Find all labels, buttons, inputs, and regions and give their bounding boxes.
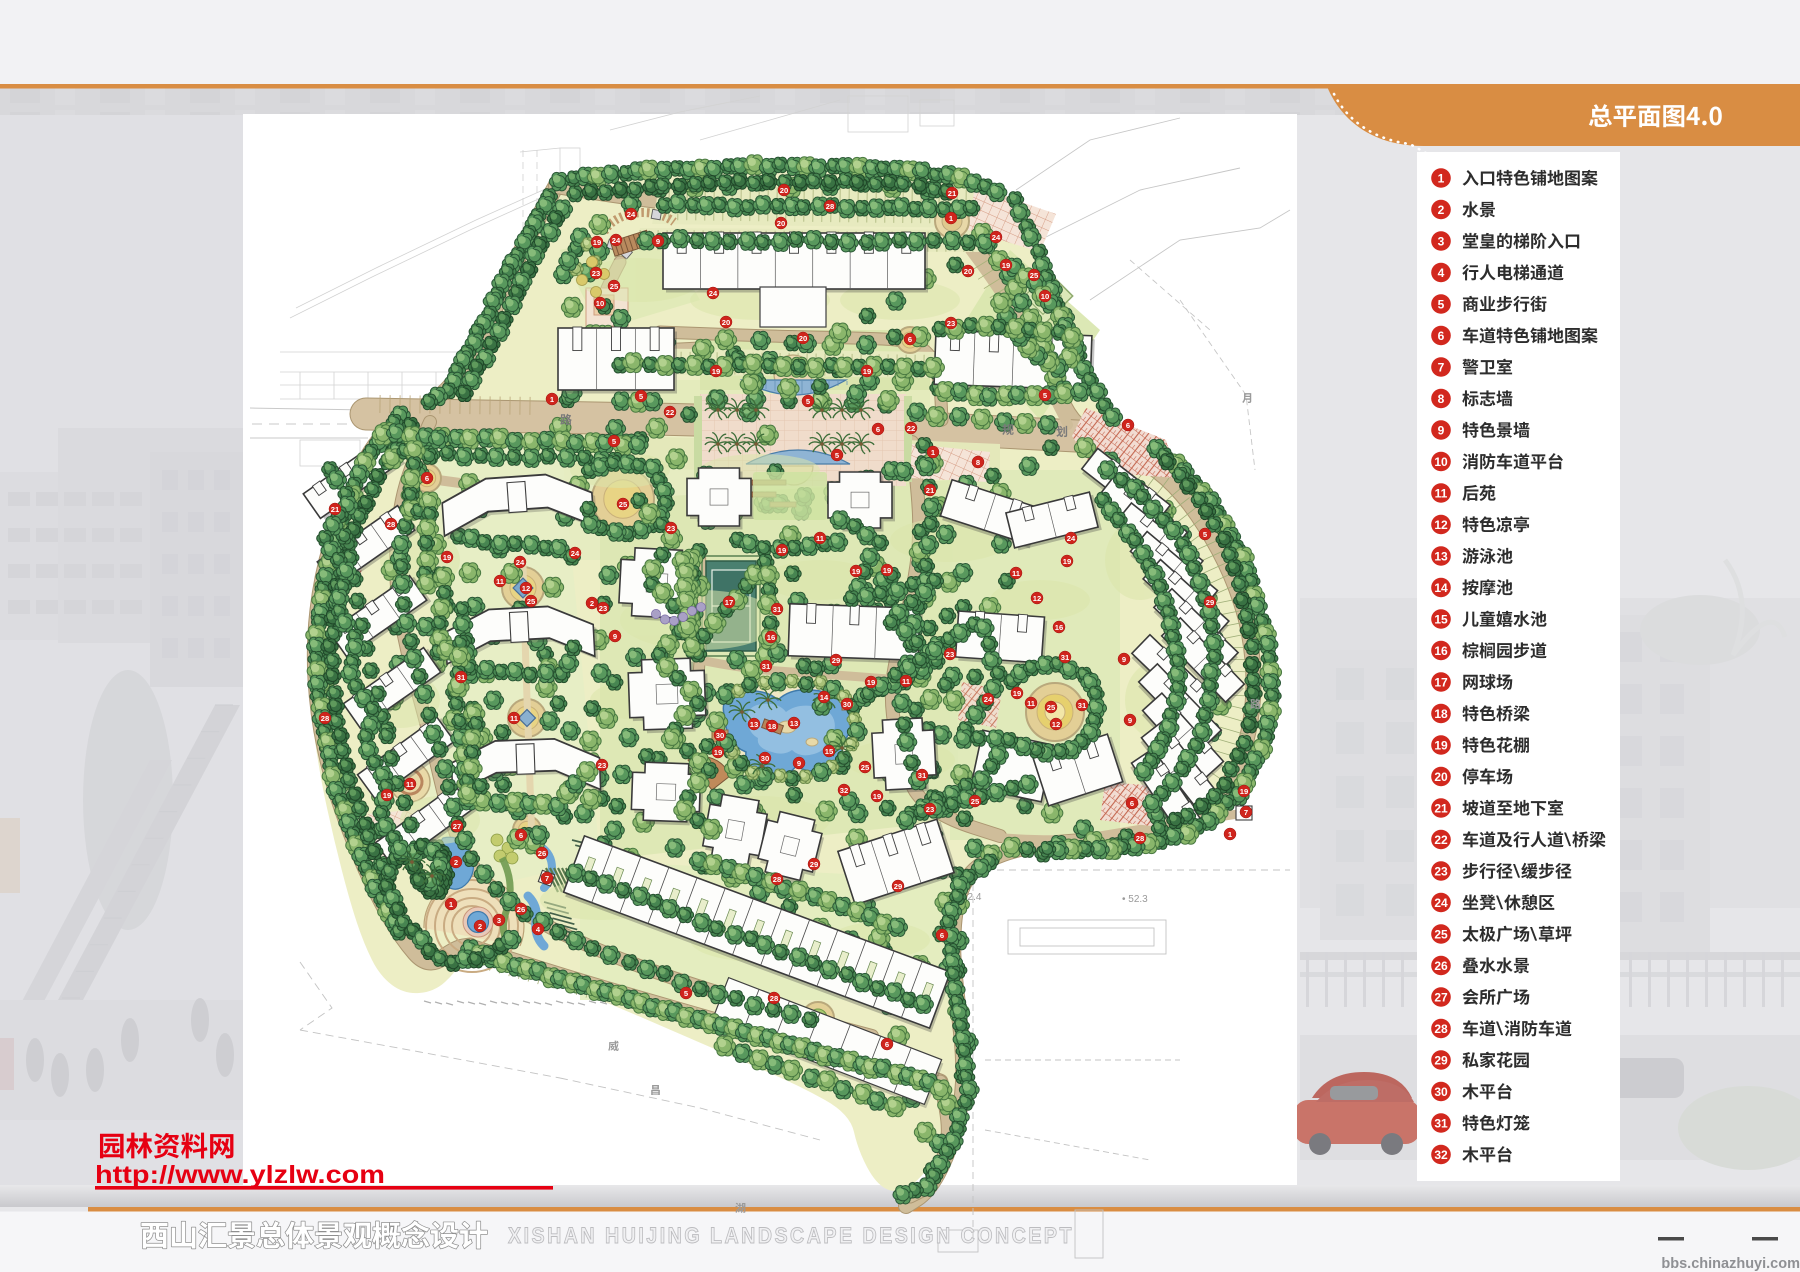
svg-text:23: 23 [1434,864,1448,878]
svg-text:30: 30 [1434,1085,1448,1099]
svg-text:2: 2 [590,599,594,608]
svg-text:23: 23 [946,650,954,659]
svg-text:28: 28 [773,875,781,884]
svg-text:18: 18 [1434,707,1448,721]
svg-text:24: 24 [1067,534,1076,543]
svg-text:31: 31 [1061,653,1070,662]
svg-text:11: 11 [1435,486,1448,500]
svg-text:9: 9 [1128,716,1132,725]
svg-text:10: 10 [1041,292,1049,301]
svg-text:18: 18 [768,722,776,731]
svg-text:19: 19 [1240,787,1248,796]
svg-text:6: 6 [1126,421,1130,430]
svg-text:17: 17 [725,598,733,607]
svg-text:15: 15 [825,747,834,756]
svg-text:11: 11 [510,714,519,723]
svg-text:20: 20 [780,186,788,195]
svg-text:32: 32 [840,786,848,795]
svg-text:11: 11 [1012,569,1021,578]
svg-text:27: 27 [453,822,461,831]
svg-text:25: 25 [971,797,980,806]
svg-text:16: 16 [1434,644,1448,658]
svg-text:12: 12 [1052,720,1060,729]
svg-text:9: 9 [797,759,801,768]
svg-text:3: 3 [497,916,501,925]
svg-text:http://www.ylzlw.com: http://www.ylzlw.com [95,1161,385,1189]
svg-text:12: 12 [1434,518,1448,532]
svg-text:29: 29 [894,882,902,891]
svg-text:6: 6 [885,1040,889,1049]
svg-text:30: 30 [843,700,851,709]
svg-text:21: 21 [1434,801,1448,815]
svg-text:19: 19 [593,238,601,247]
svg-text:• 52.3: • 52.3 [1122,894,1148,905]
svg-text:6: 6 [519,831,523,840]
svg-text:29: 29 [1434,1053,1448,1067]
svg-text:11: 11 [1027,699,1036,708]
svg-text:19: 19 [712,367,720,376]
svg-text:6: 6 [940,931,944,940]
svg-text:2: 2 [478,922,482,931]
svg-text:6: 6 [908,335,912,344]
svg-text:21: 21 [948,189,957,198]
svg-text:11: 11 [496,577,505,586]
svg-text:19: 19 [1434,738,1448,752]
svg-text:19: 19 [867,678,875,687]
svg-text:20: 20 [777,219,785,228]
svg-text:7: 7 [545,874,549,883]
svg-text:9: 9 [1438,423,1445,437]
svg-text:19: 19 [1002,261,1010,270]
svg-text:20: 20 [964,267,972,276]
svg-text:16: 16 [1055,623,1063,632]
svg-text:XISHAN HUIJING LANDSCAPE DESIG: XISHAN HUIJING LANDSCAPE DESIGN CONCEPT [508,1223,1074,1248]
svg-text:22: 22 [666,408,674,417]
svg-text:28: 28 [1434,1022,1448,1036]
svg-text:28: 28 [387,520,395,529]
svg-text:14: 14 [1434,581,1448,595]
svg-text:23: 23 [667,524,675,533]
svg-text:13: 13 [790,719,798,728]
svg-text:6: 6 [1130,799,1134,808]
svg-text:12: 12 [1033,594,1041,603]
svg-text:7: 7 [1244,808,1248,817]
svg-text:26: 26 [538,849,546,858]
svg-text:3: 3 [1438,234,1445,248]
svg-text:31: 31 [1434,1116,1448,1130]
svg-text:19: 19 [873,792,881,801]
svg-text:19: 19 [1013,689,1021,698]
svg-text:16: 16 [767,633,775,642]
svg-text:bbs.chinazhuyi.com: bbs.chinazhuyi.com [1661,1256,1800,1272]
svg-text:19: 19 [852,567,860,576]
svg-text:31: 31 [773,605,782,614]
svg-text:25: 25 [861,763,870,772]
svg-text:24: 24 [516,558,525,567]
svg-text:25: 25 [1434,927,1448,941]
svg-text:8: 8 [1438,392,1445,406]
svg-text:1: 1 [1438,171,1445,185]
svg-text:32: 32 [1434,1148,1448,1162]
svg-text:5: 5 [1438,297,1445,311]
svg-text:12: 12 [522,584,530,593]
svg-text:23: 23 [592,269,600,278]
svg-text:28: 28 [826,202,834,211]
svg-text:23: 23 [947,319,955,328]
svg-text:25: 25 [619,500,628,509]
svg-text:17: 17 [1434,675,1448,689]
svg-text:27: 27 [1434,990,1448,1004]
svg-text:2: 2 [454,858,458,867]
svg-text:31: 31 [918,771,927,780]
svg-text:19: 19 [863,367,871,376]
svg-text:11: 11 [816,534,825,543]
svg-text:29: 29 [832,656,840,665]
svg-text:28: 28 [1136,834,1144,843]
svg-text:23: 23 [926,805,934,814]
svg-text:23: 23 [598,761,606,770]
svg-text:26: 26 [1434,959,1448,973]
svg-text:20: 20 [799,334,807,343]
svg-text:31: 31 [762,662,771,671]
svg-text:10: 10 [1434,455,1448,469]
svg-text:24: 24 [1434,896,1448,910]
svg-text:19: 19 [443,553,451,562]
svg-text:7: 7 [1438,360,1445,374]
svg-text:2: 2 [1438,203,1445,217]
svg-text:21: 21 [331,505,340,514]
svg-text:24: 24 [571,549,580,558]
svg-text:29: 29 [1206,598,1214,607]
svg-text:19: 19 [778,546,786,555]
svg-text:26: 26 [517,905,525,914]
svg-text:30: 30 [716,731,724,740]
svg-text:4: 4 [1438,266,1445,280]
svg-text:11: 11 [902,677,911,686]
svg-text:28: 28 [321,714,329,723]
svg-text:21: 21 [926,486,935,495]
svg-text:11: 11 [406,780,415,789]
svg-text:25: 25 [610,282,619,291]
svg-text:29: 29 [810,860,818,869]
svg-text:23: 23 [599,604,607,613]
svg-text:30: 30 [761,754,769,763]
svg-text:24: 24 [984,695,993,704]
svg-text:19: 19 [883,566,891,575]
svg-text:13: 13 [750,720,758,729]
svg-text:14: 14 [820,693,829,702]
svg-text:9: 9 [613,632,617,641]
svg-text:9: 9 [656,237,660,246]
svg-text:31: 31 [1078,701,1087,710]
svg-text:25: 25 [527,597,536,606]
svg-text:22: 22 [1434,833,1448,847]
svg-text:24: 24 [612,236,621,245]
svg-text:28: 28 [770,994,778,1003]
svg-text:22: 22 [907,424,915,433]
svg-text:19: 19 [714,748,722,757]
svg-text:6: 6 [425,474,429,483]
svg-text:13: 13 [1434,549,1448,563]
svg-text:20: 20 [722,318,730,327]
svg-text:19: 19 [1063,557,1071,566]
svg-text:24: 24 [992,233,1001,242]
svg-text:9: 9 [1122,655,1126,664]
svg-text:25: 25 [1047,703,1056,712]
svg-text:19: 19 [383,791,391,800]
svg-text:6: 6 [876,425,880,434]
svg-text:24: 24 [709,289,718,298]
svg-text:31: 31 [457,673,466,682]
svg-text:8: 8 [976,458,980,467]
svg-text:24: 24 [627,210,636,219]
svg-text:20: 20 [1434,770,1448,784]
svg-text:6: 6 [1438,329,1445,343]
svg-text:10: 10 [596,299,604,308]
svg-text:25: 25 [1030,271,1039,280]
svg-text:15: 15 [1434,612,1448,626]
